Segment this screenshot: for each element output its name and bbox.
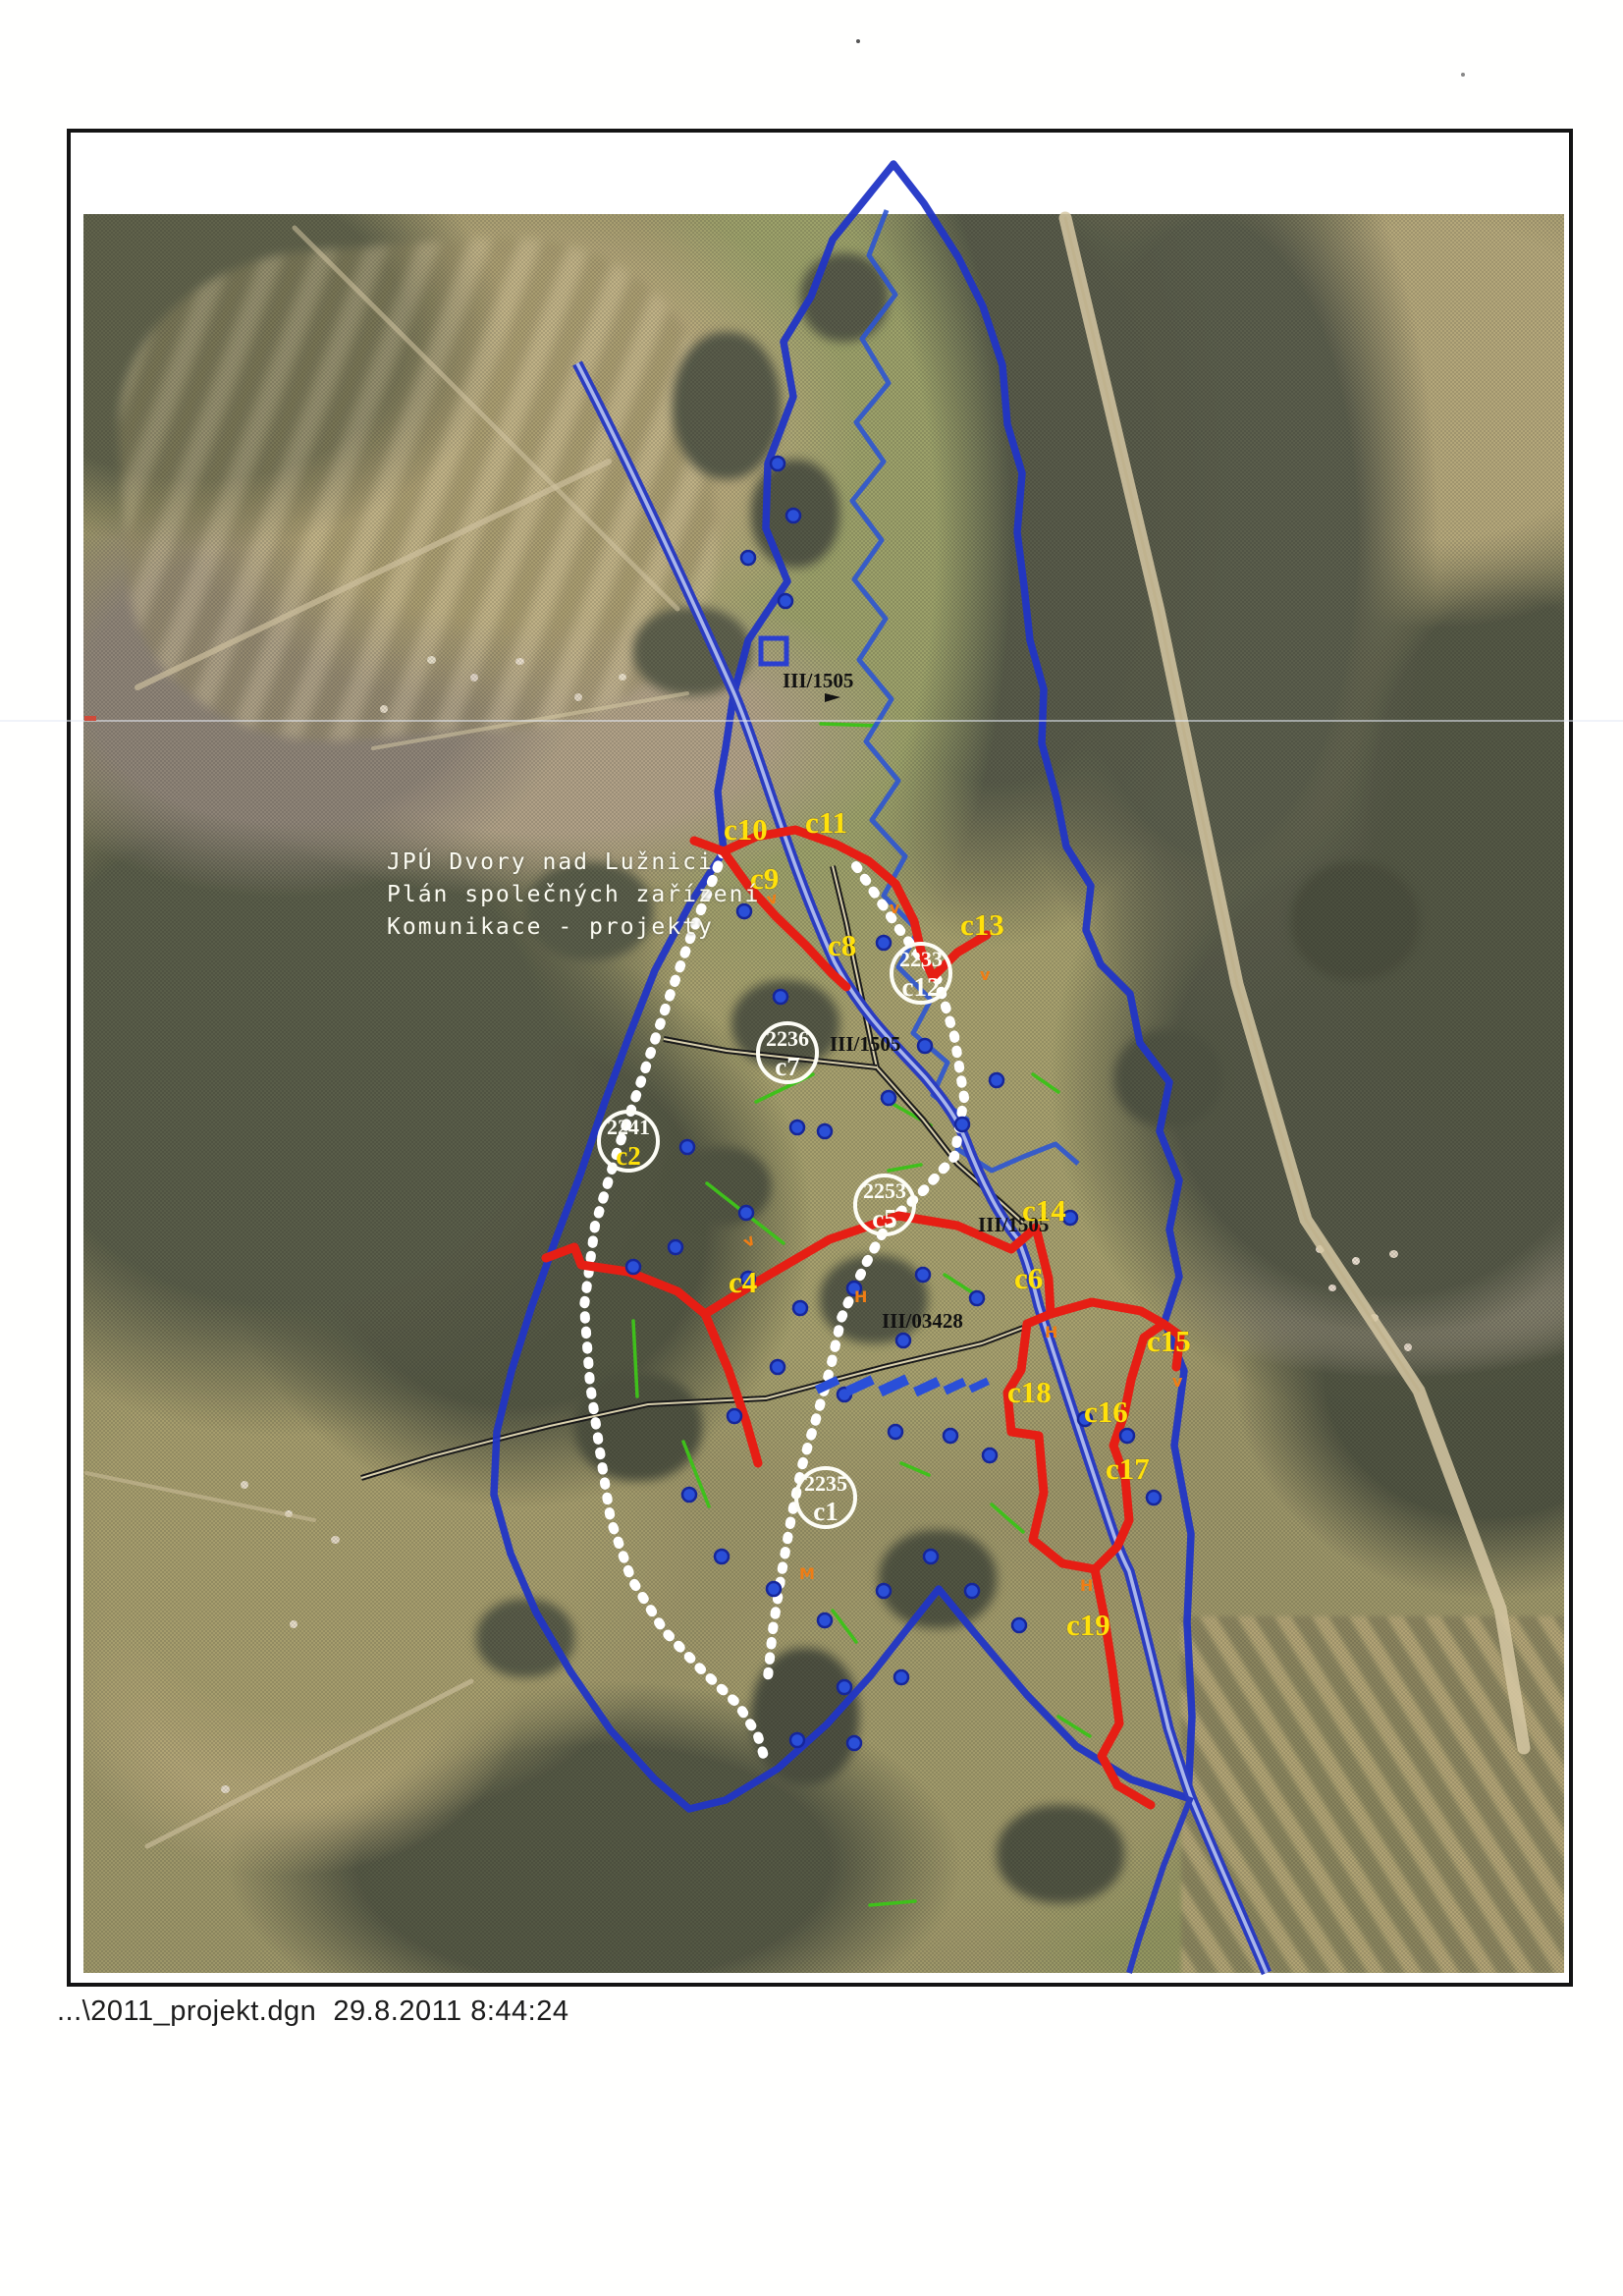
svg-text:2241: 2241 — [607, 1115, 650, 1139]
svg-text:2236: 2236 — [766, 1026, 809, 1051]
orange-marker: H — [1080, 1576, 1093, 1595]
svg-text:2233: 2233 — [899, 947, 943, 971]
scan-fold-line — [0, 720, 1623, 722]
map-title-line1: JPÚ Dvory nad Lužnici — [387, 847, 760, 879]
route-label-c10: c10 — [724, 812, 768, 847]
orange-marker: v — [980, 965, 991, 984]
file-caption: ...\2011_projekt.dgn 29.8.2011 8:44:24 — [57, 1995, 569, 2028]
route-label-c4: c4 — [729, 1265, 757, 1299]
road-label-iii1505-mid: III/1505 — [830, 1032, 900, 1056]
map-title-line2: Plán společných zařízení — [387, 879, 760, 911]
route-label-c8: c8 — [828, 928, 856, 962]
svg-text:c5: c5 — [872, 1204, 896, 1233]
route-label-c16: c16 — [1084, 1394, 1128, 1429]
circled-label-c5: 2253 c5 — [855, 1175, 914, 1234]
road-label-arrow-icon — [825, 693, 840, 702]
route-label-c14: c14 — [1022, 1193, 1066, 1228]
svg-text:c12: c12 — [902, 972, 941, 1002]
scan-red-mark — [84, 716, 96, 721]
orange-marker: v — [740, 1230, 759, 1251]
route-label-c15: c15 — [1147, 1324, 1191, 1358]
road-label-iii1505-top: III/1505 — [783, 669, 853, 692]
route-label-c18: c18 — [1007, 1375, 1052, 1409]
svg-text:2253: 2253 — [863, 1178, 906, 1203]
map-title: JPÚ Dvory nad Lužnici Plán společných za… — [387, 847, 760, 944]
red-routes — [546, 830, 1180, 1805]
circled-label-c1: 2235 c1 — [796, 1468, 855, 1527]
route-label-c19: c19 — [1066, 1608, 1110, 1642]
map-title-line3: Komunikace - projekty — [387, 911, 760, 944]
route-label-c17: c17 — [1106, 1451, 1150, 1486]
map-overlay: v v v H H M v v H III/1505 III/1505 III/… — [0, 0, 1623, 2296]
orange-marker: H — [854, 1287, 867, 1306]
road-label-iii03428: III/03428 — [882, 1309, 963, 1333]
circled-label-c2: 2241 c2 — [599, 1112, 658, 1171]
svg-text:c7: c7 — [775, 1052, 799, 1081]
svg-text:c2: c2 — [616, 1141, 640, 1171]
route-label-c13: c13 — [960, 907, 1004, 942]
blue-symbols — [626, 457, 1161, 1750]
svg-text:2235: 2235 — [804, 1471, 847, 1496]
orange-marker: v — [890, 899, 900, 917]
orange-marker: v — [1172, 1372, 1183, 1391]
svg-text:c1: c1 — [813, 1497, 838, 1526]
route-label-c6: c6 — [1014, 1261, 1043, 1295]
route-label-c11: c11 — [805, 805, 847, 840]
orange-marker: M — [799, 1564, 815, 1583]
scanned-map-page: v v v H H M v v H III/1505 III/1505 III/… — [0, 0, 1623, 2296]
orange-marker: H — [1045, 1323, 1057, 1341]
